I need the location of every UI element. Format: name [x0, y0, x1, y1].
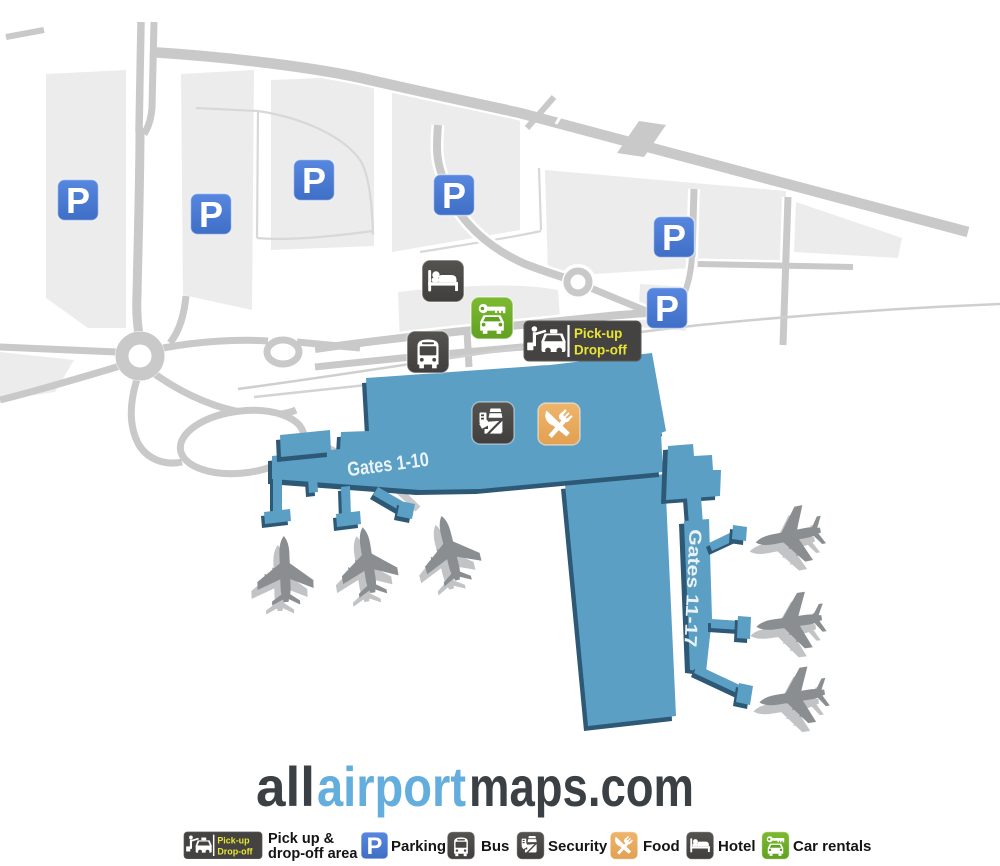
- svg-text:Car rentals: Car rentals: [793, 838, 871, 855]
- svg-text:airport: airport: [317, 755, 466, 818]
- svg-text:Parking: Parking: [391, 838, 446, 855]
- svg-text:Pick up &: Pick up &: [268, 831, 335, 847]
- svg-text:Hotel: Hotel: [718, 838, 756, 855]
- svg-text:Bus: Bus: [481, 838, 509, 855]
- svg-text:Security: Security: [548, 838, 608, 855]
- svg-text:Food: Food: [643, 838, 680, 855]
- svg-text:all: all: [256, 755, 315, 818]
- svg-text:maps.com: maps.com: [469, 755, 694, 818]
- svg-text:drop-off area: drop-off area: [268, 846, 358, 862]
